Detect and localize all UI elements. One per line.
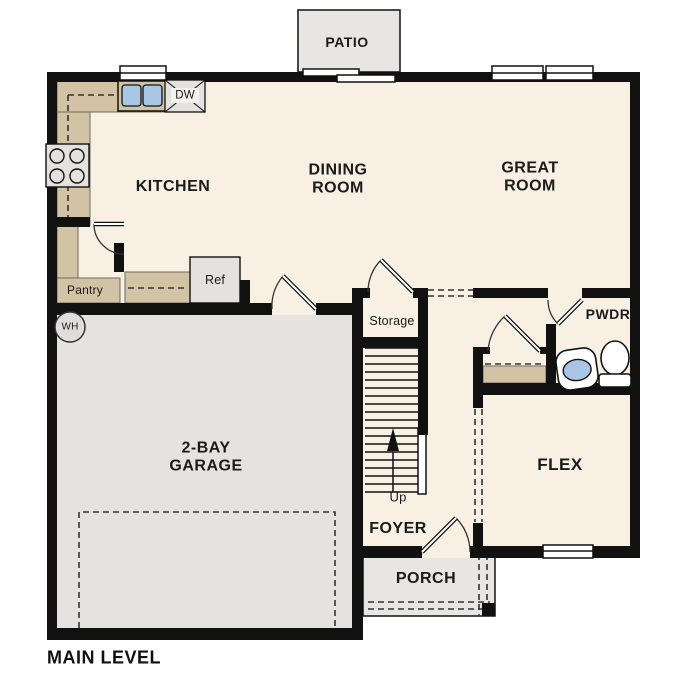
water-heater-label: WH [61, 321, 78, 333]
porch-post [482, 603, 495, 616]
stair-handrail [418, 428, 426, 494]
patio-sliding-door [337, 75, 395, 82]
wall-segment [47, 217, 90, 227]
range-fixture [46, 144, 89, 187]
wall-segment [352, 288, 363, 640]
wall-segment [114, 243, 124, 272]
wall-segment [47, 628, 363, 640]
wall-segment [316, 303, 363, 315]
wall-segment [473, 523, 483, 546]
wall-segment [418, 288, 428, 435]
garage-label: 2-BAY GARAGE [169, 440, 242, 477]
wall-segment [630, 72, 640, 558]
wall-segment [363, 337, 428, 348]
floor-plan-drawing [0, 0, 687, 687]
kitchen-label: KITCHEN [136, 178, 211, 196]
plan-title: MAIN LEVEL [47, 648, 161, 669]
closet-shelf [483, 366, 546, 383]
great-room-label: GREAT ROOM [501, 160, 558, 197]
patio-label: PATIO [325, 34, 368, 50]
powder-sink-fixture [554, 346, 599, 391]
wall-segment [363, 546, 422, 558]
wall-segment [363, 288, 370, 298]
wall-segment [582, 288, 640, 298]
dishwasher-label: DW [175, 89, 195, 102]
floor-plan: PATIO KITCHEN DINING ROOM GREAT ROOM PWD… [0, 0, 687, 687]
toilet-fixture [599, 341, 631, 387]
foyer-label: FOYER [369, 520, 427, 538]
powder-room-label: PWDR [586, 306, 631, 322]
dining-room-label: DINING ROOM [309, 162, 368, 199]
flex-label: FLEX [537, 455, 582, 475]
wall-segment [473, 288, 548, 298]
wall-segment [546, 324, 556, 383]
wall-segment [473, 347, 483, 408]
porch-label: PORCH [396, 570, 456, 588]
sink-basin [143, 85, 162, 106]
sink-basin [122, 85, 141, 106]
up-label: Up [389, 491, 406, 506]
wall-segment [47, 303, 272, 315]
refrigerator-label: Ref [205, 273, 225, 287]
pantry-label: Pantry [67, 284, 103, 298]
wall-segment [240, 280, 250, 303]
storage-label: Storage [369, 314, 414, 328]
